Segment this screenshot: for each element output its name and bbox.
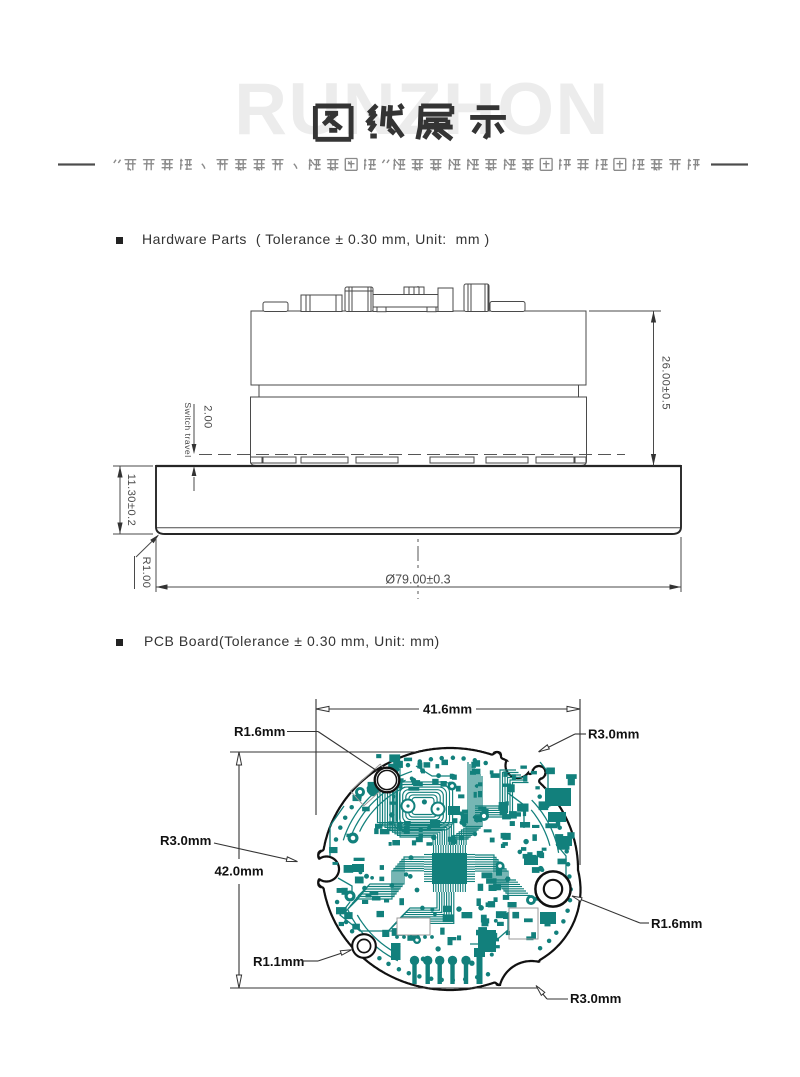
svg-text:Switch travel: Switch travel [183,402,193,457]
svg-text:26.00±0.5: 26.00±0.5 [660,356,672,410]
svg-text:42.0mm: 42.0mm [214,864,263,879]
svg-text:41.6mm: 41.6mm [423,702,472,717]
svg-text:R1.00: R1.00 [140,557,152,589]
svg-text:Ø79.00±0.3: Ø79.00±0.3 [385,573,450,587]
svg-text:R3.0mm: R3.0mm [570,991,621,1006]
svg-text:R1.6mm: R1.6mm [651,916,702,931]
svg-text:R3.0mm: R3.0mm [160,833,211,848]
svg-text:R1.1mm: R1.1mm [253,954,304,969]
svg-text:11.30±0.2: 11.30±0.2 [125,474,137,527]
svg-text:2.00: 2.00 [202,405,214,428]
svg-text:R1.6mm: R1.6mm [234,724,285,739]
svg-text:R3.0mm: R3.0mm [588,727,639,742]
